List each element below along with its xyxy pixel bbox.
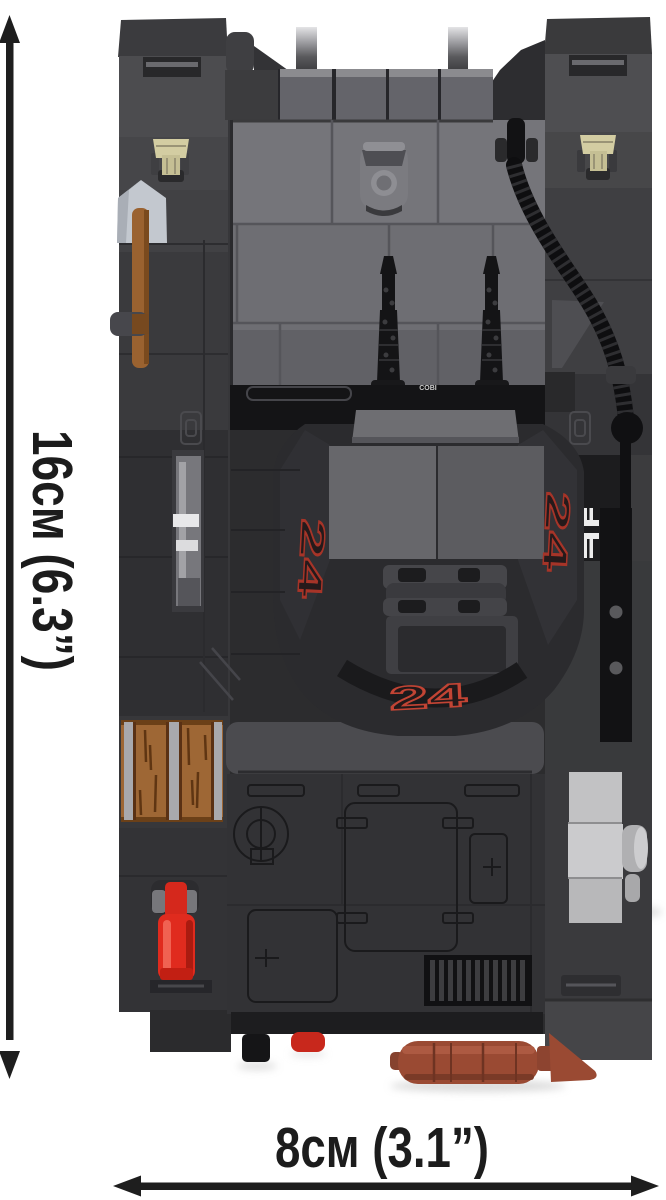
svg-text:24: 24 — [536, 491, 578, 572]
svg-text:24: 24 — [388, 676, 467, 717]
svg-text:24: 24 — [291, 518, 333, 599]
svg-text:COBI: COBI — [419, 385, 437, 392]
svg-text:16см (6.3”): 16см (6.3”) — [20, 430, 84, 671]
svg-text:8см (3.1”): 8см (3.1”) — [275, 1116, 489, 1180]
